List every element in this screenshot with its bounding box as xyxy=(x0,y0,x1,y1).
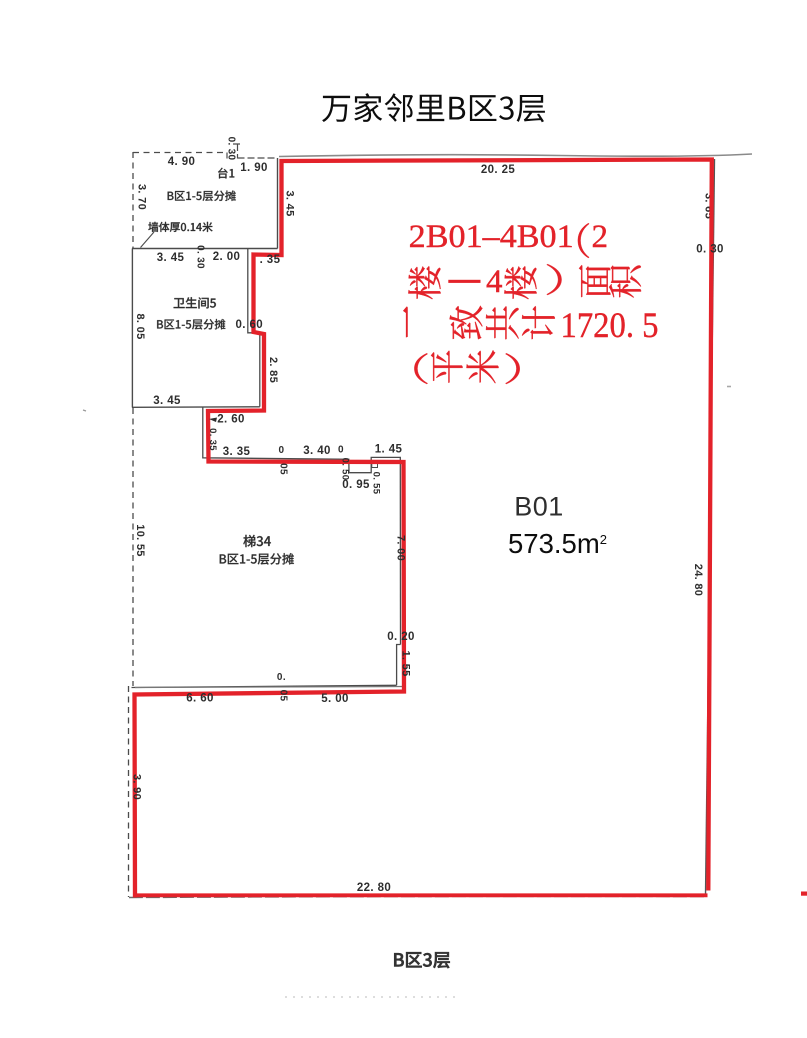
svg-text:0. 60: 0. 60 xyxy=(236,319,264,331)
svg-text:8. 05: 8. 05 xyxy=(134,314,146,340)
svg-text:2B01–4B01: 2B01–4B01 xyxy=(409,219,574,255)
svg-text:1. 55: 1. 55 xyxy=(400,651,412,677)
svg-text:05: 05 xyxy=(278,463,289,475)
svg-text:0. 30: 0. 30 xyxy=(226,137,237,161)
svg-text:4: 4 xyxy=(486,264,503,300)
svg-text:5. 00: 5. 00 xyxy=(321,693,349,705)
svg-text:0. 55: 0. 55 xyxy=(371,472,382,495)
svg-text:24. 80: 24. 80 xyxy=(692,564,704,596)
svg-text:20. 25: 20. 25 xyxy=(481,164,516,176)
svg-text:0. 95: 0. 95 xyxy=(342,479,370,491)
svg-text:0. 35: 0. 35 xyxy=(207,428,218,451)
svg-text:3. 45: 3. 45 xyxy=(284,191,296,217)
svg-text:6. 60: 6. 60 xyxy=(186,693,214,705)
svg-text:3. 90: 3. 90 xyxy=(131,774,143,800)
svg-text:1. 45: 1. 45 xyxy=(375,444,403,456)
svg-text:573.5m2: 573.5m2 xyxy=(508,528,607,559)
svg-text:3. 45: 3. 45 xyxy=(153,395,181,407)
svg-text:4. 90: 4. 90 xyxy=(168,156,196,168)
svg-text:2: 2 xyxy=(592,219,609,255)
svg-text:10. 55: 10. 55 xyxy=(134,524,146,556)
svg-text:3. 70: 3. 70 xyxy=(136,184,148,210)
svg-text:B01: B01 xyxy=(514,492,564,522)
svg-text:1. 90: 1. 90 xyxy=(240,162,268,174)
svg-text:2. 60: 2. 60 xyxy=(217,414,245,426)
svg-text:1720. 5: 1720. 5 xyxy=(561,305,659,345)
svg-text:3. 45: 3. 45 xyxy=(157,252,185,264)
svg-text:05: 05 xyxy=(278,690,289,702)
svg-text:0. 20: 0. 20 xyxy=(387,631,415,643)
svg-text:22. 80: 22. 80 xyxy=(357,882,391,894)
svg-text:0.: 0. xyxy=(277,672,286,683)
svg-text:7. 00: 7. 00 xyxy=(395,535,407,561)
svg-text:0: 0 xyxy=(338,445,344,456)
svg-text:2. 85: 2. 85 xyxy=(267,357,279,383)
svg-text:0. 30: 0. 30 xyxy=(195,245,206,269)
svg-text:. 35: . 35 xyxy=(260,254,281,266)
svg-text:0: 0 xyxy=(279,445,285,456)
svg-text:0. 50: 0. 50 xyxy=(340,458,351,481)
svg-text:3. 40: 3. 40 xyxy=(303,445,331,457)
svg-text:0. 30: 0. 30 xyxy=(696,244,724,256)
svg-text:2. 00: 2. 00 xyxy=(213,251,241,263)
svg-text:3. 35: 3. 35 xyxy=(223,446,251,458)
